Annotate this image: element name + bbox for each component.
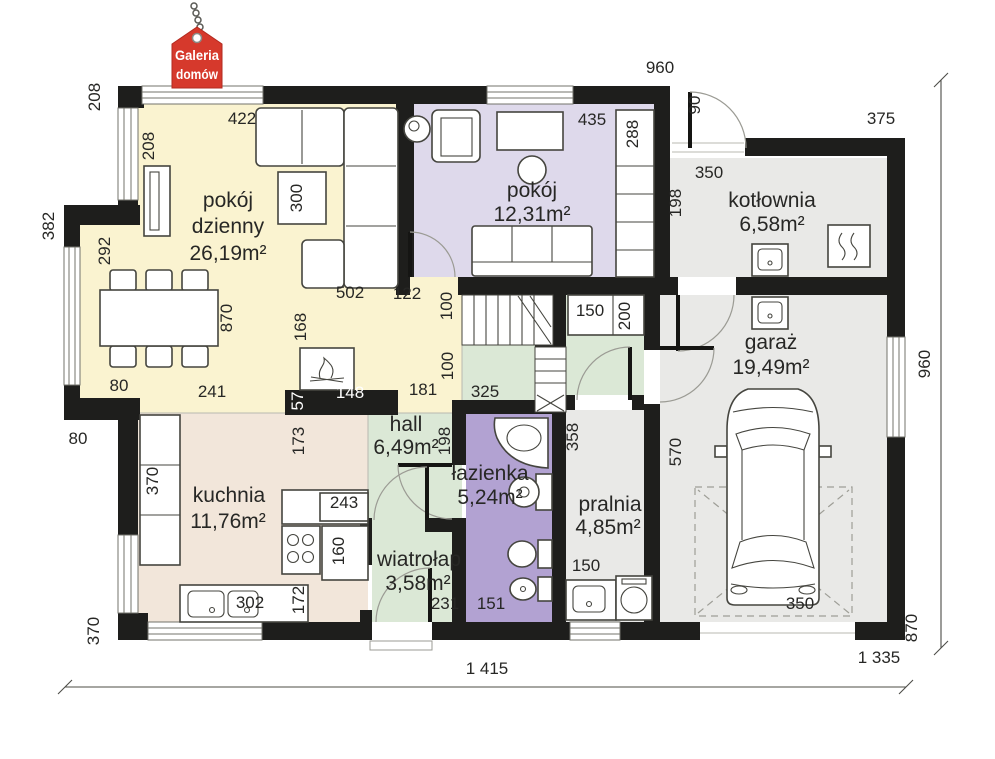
dimension-label: 300 — [287, 184, 306, 212]
dimension-label: 960 — [915, 350, 934, 378]
dimension-label: 382 — [39, 212, 58, 240]
pouf — [404, 116, 430, 142]
dimension-label: 243 — [330, 493, 358, 512]
window-garage-right — [887, 337, 905, 437]
washing-machine — [616, 576, 652, 620]
bidet — [510, 577, 552, 601]
logo-text-line1: Galeria — [175, 47, 219, 63]
laundry-sink — [566, 580, 616, 620]
car-mirror-left — [715, 446, 727, 457]
room-label-garaz: 19,49m² — [732, 356, 809, 379]
dimension-label: 150 — [576, 301, 604, 320]
window-kitchen-bottom — [148, 622, 262, 640]
dimension-label: 370 — [143, 467, 162, 495]
dimension-label: 80 — [69, 429, 88, 448]
dimension-label: 288 — [623, 120, 642, 148]
sideboard — [144, 166, 170, 236]
boiler-room-sink — [752, 244, 788, 276]
room-label-garaz: garaż — [745, 331, 798, 354]
logo: Galeria domów — [172, 3, 222, 88]
car-mirror-right — [819, 446, 831, 457]
stairs-lower-flight — [535, 347, 566, 412]
room-label-pokoj-dzienny: 26,19m² — [189, 242, 266, 265]
dimension-label: 350 — [786, 594, 814, 613]
room-label-lazienka: łazienka — [451, 462, 528, 485]
window-bedroom-top — [487, 86, 573, 104]
bedroom-sofa — [472, 226, 592, 276]
dimension-label: 325 — [471, 382, 499, 401]
dining-table-set — [100, 270, 218, 367]
dimension-label: 100 — [438, 352, 457, 380]
armchair — [432, 110, 480, 162]
room-label-wiatrolap: 3,58m² — [385, 572, 450, 595]
room-label-pokoj: 12,31m² — [493, 203, 570, 226]
window-living-top — [142, 86, 263, 104]
dimension-label: 502 — [336, 283, 364, 302]
dimension-label: 435 — [578, 110, 606, 129]
dimension-label: 148 — [336, 383, 364, 402]
dimension-label: 200 — [615, 302, 634, 330]
room-label-lazienka: 5,24m² — [457, 486, 522, 509]
dimension-label: 208 — [85, 83, 104, 111]
dimension-label: 302 — [236, 593, 264, 612]
dimension-label: 80 — [110, 376, 129, 395]
room-label-kuchnia: kuchnia — [193, 484, 266, 507]
dimension-label: 231 — [431, 594, 459, 613]
dimension-label: 241 — [198, 382, 226, 401]
dimension-label: 181 — [409, 380, 437, 399]
stairs-upper-flight — [462, 295, 553, 345]
entrance-step — [370, 641, 432, 650]
dimension-label: 870 — [217, 304, 236, 332]
room-label-kotlownia: kotłownia — [728, 189, 816, 212]
dimension-label: 422 — [228, 109, 256, 128]
room-label-pralnia: pralnia — [578, 493, 641, 516]
room-label-hall: hall — [390, 413, 423, 436]
toilet — [508, 540, 552, 568]
room-label-hall: 6,49m² — [373, 436, 438, 459]
logo-chain — [191, 3, 203, 30]
dimension-label: 151 — [477, 594, 505, 613]
window-laundry-bottom — [570, 622, 620, 640]
dimension-label: 198 — [435, 427, 454, 455]
dimension-label: 160 — [329, 537, 348, 565]
dimension-label: 122 — [393, 284, 421, 303]
window-bay — [64, 247, 80, 385]
dimension-label: 570 — [666, 438, 685, 466]
dimension-label: 173 — [289, 427, 308, 455]
room-label-pokoj-dzienny: dzienny — [192, 215, 265, 238]
dimension-label: 172 — [289, 586, 308, 614]
dimension-label: 100 — [437, 292, 456, 320]
room-label-pokoj: pokój — [507, 179, 557, 202]
dimension-label: 1 415 — [466, 659, 509, 678]
room-label-kuchnia: 11,76m² — [190, 510, 265, 533]
boiler — [828, 225, 870, 267]
logo-text-line2: domów — [176, 66, 218, 82]
room-label-pralnia: 4,85m² — [575, 516, 640, 539]
dimension-label: 375 — [867, 109, 895, 128]
window-left-upper — [118, 108, 138, 200]
room-label-kotlownia: 6,58m² — [739, 213, 804, 236]
car — [715, 389, 831, 605]
room-label-wiatrolap: wiatrołap — [376, 548, 461, 571]
window-kitchen-left — [118, 535, 138, 613]
stove — [282, 526, 320, 574]
dimension-label: 168 — [291, 313, 310, 341]
dimension-label: 198 — [666, 189, 685, 217]
dimension-label: 370 — [84, 617, 103, 645]
dimension-label: 150 — [572, 556, 600, 575]
dimension-label: 57 — [288, 392, 307, 411]
dimension-label: 292 — [95, 237, 114, 265]
desk — [497, 112, 563, 150]
dimension-label: 358 — [563, 423, 582, 451]
dimension-label: 350 — [695, 163, 723, 182]
dimension-label: 90 — [685, 96, 704, 115]
dimension-label: 208 — [139, 132, 158, 160]
room-label-pokoj-dzienny: pokój — [203, 189, 253, 212]
dimension-label: 960 — [646, 58, 674, 77]
floor-plan-page: pokójdzienny26,19m²pokój12,31m²kotłownia… — [0, 0, 995, 759]
logo-hole-icon — [193, 34, 202, 43]
dimension-label: 1 335 — [858, 648, 901, 667]
garage-sink — [752, 297, 788, 329]
floor-plan-drawing: pokójdzienny26,19m²pokój12,31m²kotłownia… — [0, 0, 995, 759]
dimension-label: 870 — [902, 614, 921, 642]
